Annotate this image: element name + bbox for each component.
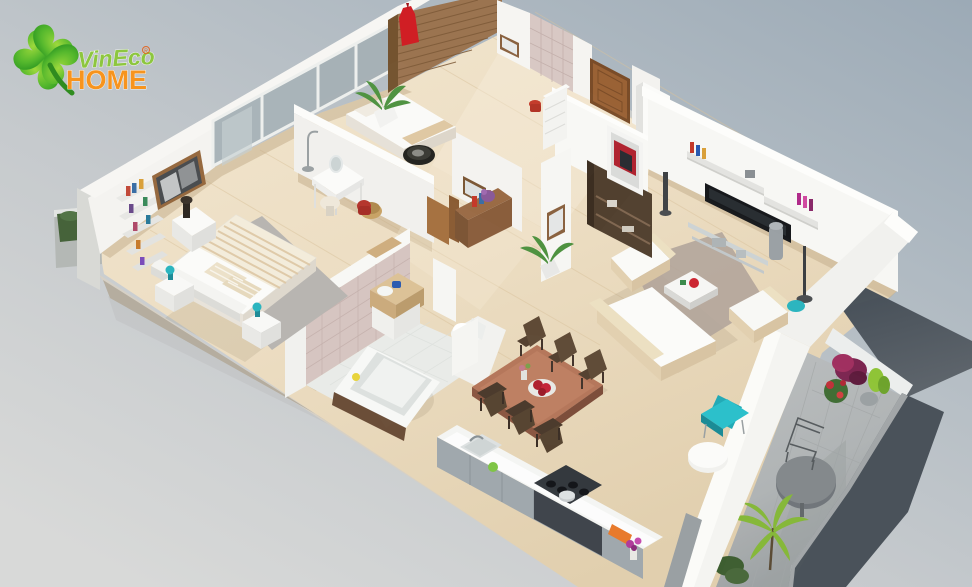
svg-text:HOME: HOME — [66, 65, 147, 95]
svg-text:R: R — [144, 49, 148, 55]
